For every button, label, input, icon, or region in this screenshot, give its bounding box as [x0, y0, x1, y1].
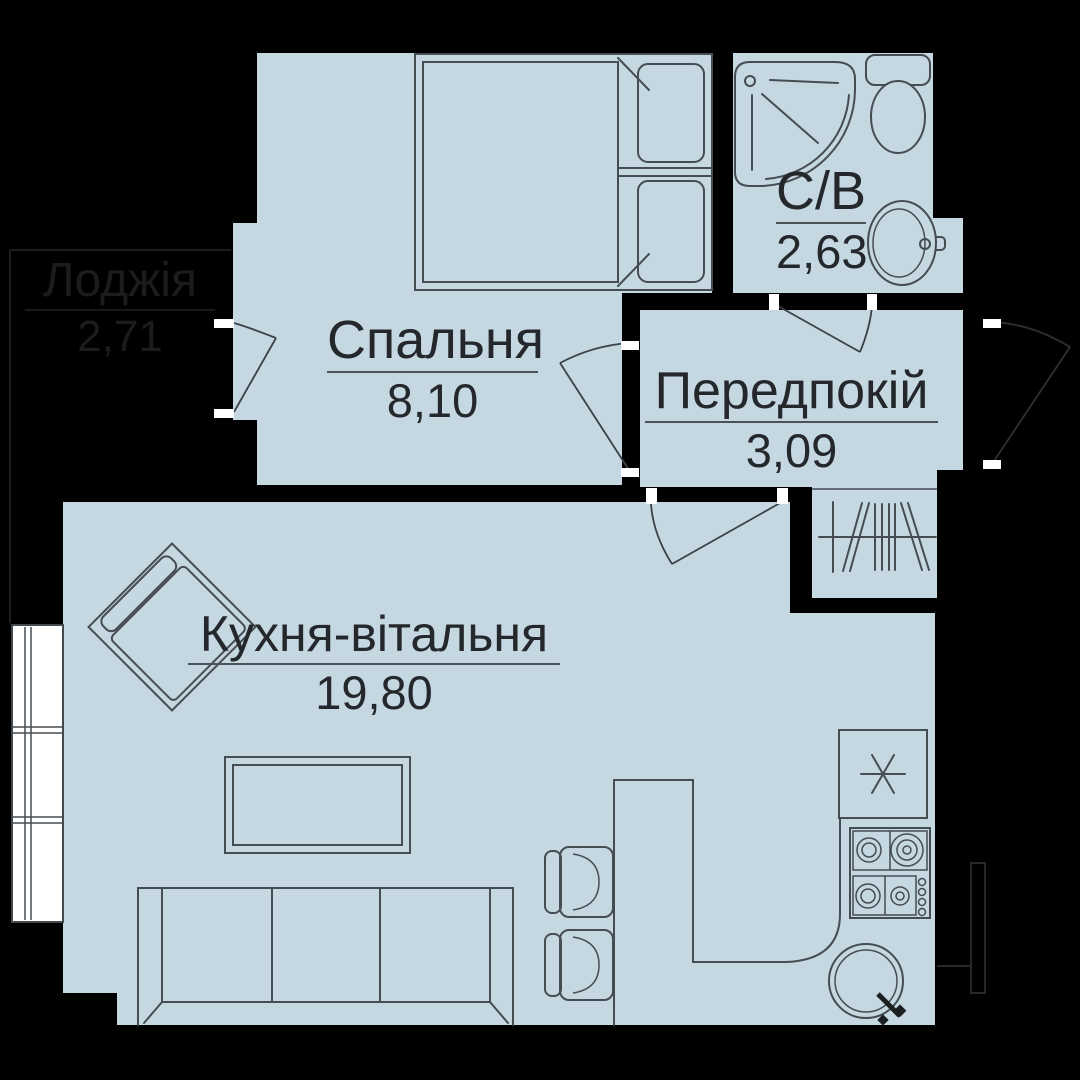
bathroom-label: С/В 2,63: [776, 163, 866, 277]
bedroom-name: Спальня: [327, 312, 538, 373]
loggia-area: 2,71: [25, 314, 215, 360]
hallway-label: Передпокій 3,09: [645, 364, 938, 475]
kitchen-living-name: Кухня-вітальня: [188, 608, 560, 665]
bathroom-area: 2,63: [776, 227, 866, 276]
floor-plan-canvas: [0, 0, 1080, 1080]
bedroom-label: Спальня 8,10: [327, 312, 538, 426]
kitchen-living-label: Кухня-вітальня 19,80: [188, 608, 560, 717]
loggia-label: Лоджія 2,71: [25, 256, 215, 360]
hallway-area: 3,09: [645, 426, 938, 475]
outside-faint-structures: [937, 863, 985, 993]
loggia-name: Лоджія: [25, 256, 215, 311]
toilet: [866, 55, 930, 153]
kitchen-living-area: 19,80: [188, 668, 560, 717]
hallway-name: Передпокій: [645, 364, 938, 423]
entrance-door-swing: [992, 322, 1070, 464]
bedroom-area: 8,10: [327, 376, 538, 425]
floor-plan: Спальня 8,10 С/В 2,63 Передпокій 3,09 Ку…: [0, 0, 1080, 1080]
bathroom-name: С/В: [776, 163, 866, 224]
balcony-window: [12, 625, 63, 922]
living-kitchen-floor: [63, 502, 935, 1025]
